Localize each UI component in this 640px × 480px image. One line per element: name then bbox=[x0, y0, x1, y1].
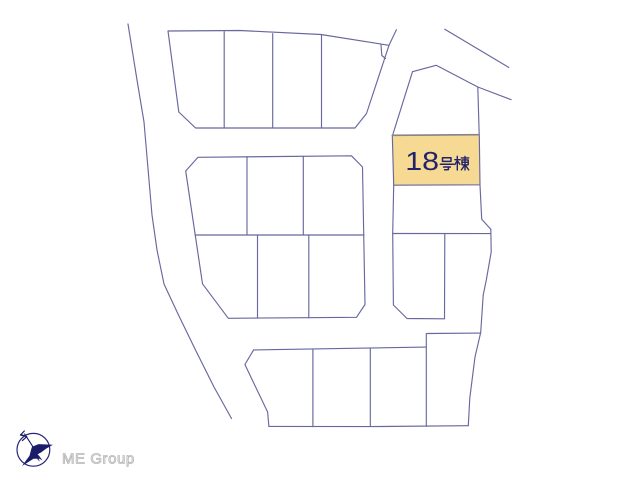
svg-text:18: 18 bbox=[405, 146, 439, 175]
svg-text:ME Group: ME Group bbox=[62, 450, 135, 467]
